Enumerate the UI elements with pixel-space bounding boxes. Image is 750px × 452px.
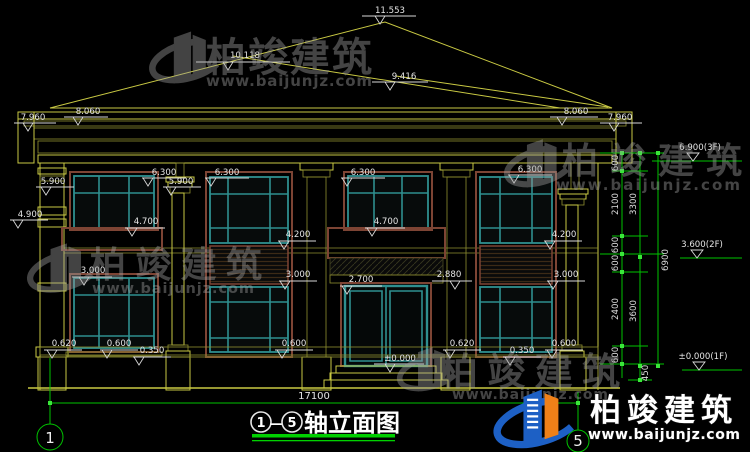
window-2f-right — [480, 177, 552, 243]
level-1f-label: ±0.000(1F) — [679, 352, 728, 362]
dim-slab-3: 3.000 — [554, 270, 579, 280]
dim-right-b1: 3300 — [629, 193, 639, 215]
title-text: 轴立面图 — [304, 409, 400, 437]
title-axis-from: 1 — [256, 416, 265, 431]
dim-cap-2: 5.900 — [169, 177, 194, 187]
watermark-right: 柏竣建筑 www.baijunjz.com — [503, 140, 742, 194]
dim-eave-lower-right: 7.960 — [608, 113, 633, 123]
dim-eave-upper-right: 8.060 — [564, 107, 589, 117]
spandrel-right — [480, 246, 552, 284]
dim-plinth-2: 0.620 — [450, 339, 475, 349]
window-1f-right — [480, 287, 552, 352]
dim-wintop-2: 6.300 — [215, 168, 240, 178]
dim-wintop-3: 6.300 — [351, 168, 376, 178]
level-2f-label: 3.600(2F) — [681, 240, 723, 250]
spandrel-center-hatch — [330, 258, 443, 275]
dim-sill1f-1: 0.600 — [107, 339, 132, 349]
dim-base-1: 0.350 — [140, 346, 165, 356]
dim-hip-right: 9.416 — [392, 72, 417, 82]
dim-right-a4: 600 — [611, 255, 621, 271]
title-underline-thin — [252, 440, 395, 441]
dim-cap-1: 5.900 — [41, 177, 66, 187]
elevation-drawing: 11.553 10.118 9.416 8.060 7.960 8.060 7.… — [0, 0, 750, 452]
dim-eave-lower-left: 7.960 — [21, 113, 46, 123]
dim-right-b2: 3600 — [629, 300, 639, 322]
brand-logo: 柏竣建筑 www.baijunjz.com — [492, 390, 740, 452]
title-underline-thick — [252, 434, 395, 438]
dim-right-a3: 600 — [611, 237, 621, 253]
dim-right-a5: 2400 — [611, 298, 621, 320]
watermark-url: www.baijunjz.com — [92, 281, 254, 297]
cad-elevation-screenshot: 11.553 10.118 9.416 8.060 7.960 8.060 7.… — [0, 0, 750, 452]
dim-ridge: 11.553 — [375, 6, 405, 16]
dim-rail-2: 4.700 — [374, 217, 399, 227]
title-axis-to: 5 — [287, 416, 296, 431]
dim-right-c1: 6900 — [661, 249, 671, 271]
axis-bubble-5-label: 5 — [573, 432, 583, 450]
brand-logo-url: www.baijunjz.com — [588, 427, 740, 443]
watermark-url: www.baijunjz.com — [206, 72, 372, 90]
dim-sill2f-2: 4.200 — [552, 230, 577, 240]
dim-plinth-1: 0.620 — [52, 339, 77, 349]
dim-sill1f-3: 0.600 — [552, 339, 577, 349]
title-dash: — — [270, 417, 283, 432]
total-width-dim: 17100 — [298, 391, 330, 402]
window-2f-mid — [210, 177, 288, 243]
dim-band-left: 4.900 — [18, 210, 43, 220]
dim-sill2f-1: 4.200 — [286, 230, 311, 240]
dim-right-b3: 450 — [641, 365, 651, 381]
dim-right-a2: 2100 — [611, 193, 621, 215]
watermark-top-center: 柏竣建筑 www.baijunjz.com — [148, 32, 372, 90]
dim-slab-2: 3.000 — [286, 270, 311, 280]
axis-bubble-1-label: 1 — [45, 429, 55, 447]
dim-door-top: 2.700 — [349, 275, 374, 285]
dim-rail-1: 4.700 — [134, 217, 159, 227]
dim-beam: 2.880 — [437, 270, 462, 280]
dim-sill1f-2: 0.600 — [282, 339, 307, 349]
watermark-left: 柏竣建筑 www.baijunjz.com — [26, 244, 262, 297]
dim-eave-upper-left: 8.060 — [76, 107, 101, 117]
